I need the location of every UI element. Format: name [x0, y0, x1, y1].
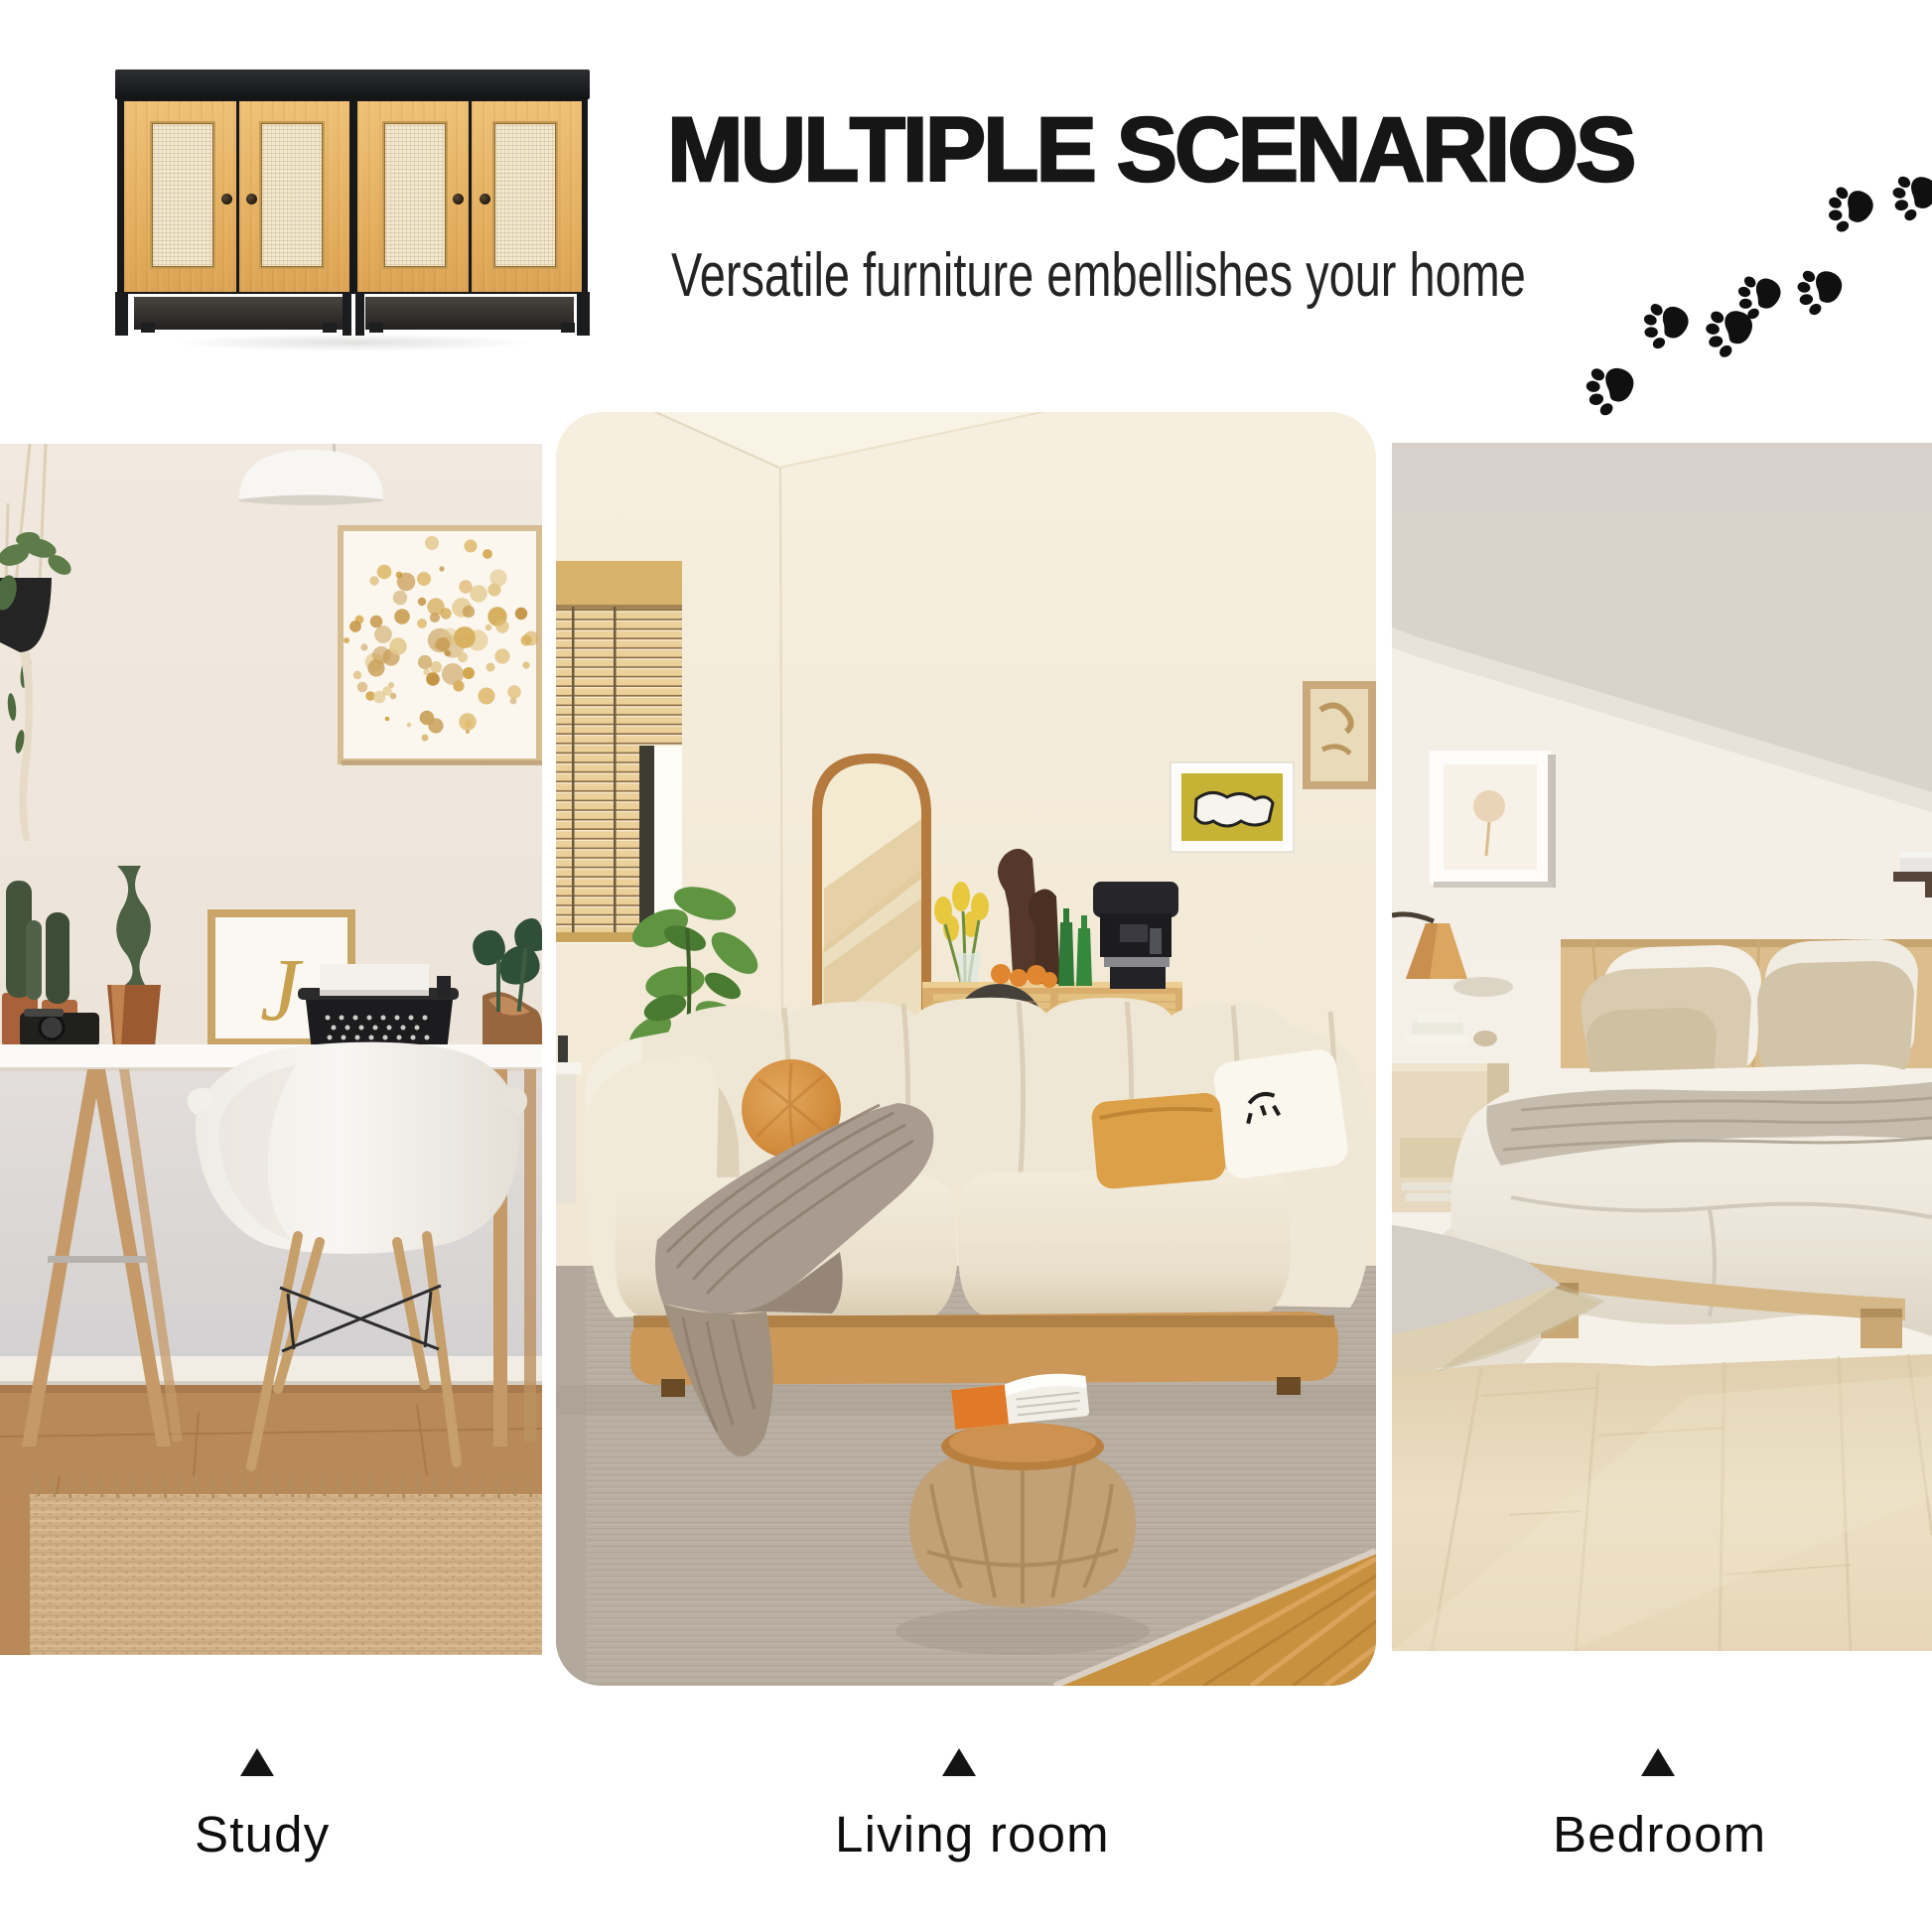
svg-text:J: J [260, 941, 304, 1039]
